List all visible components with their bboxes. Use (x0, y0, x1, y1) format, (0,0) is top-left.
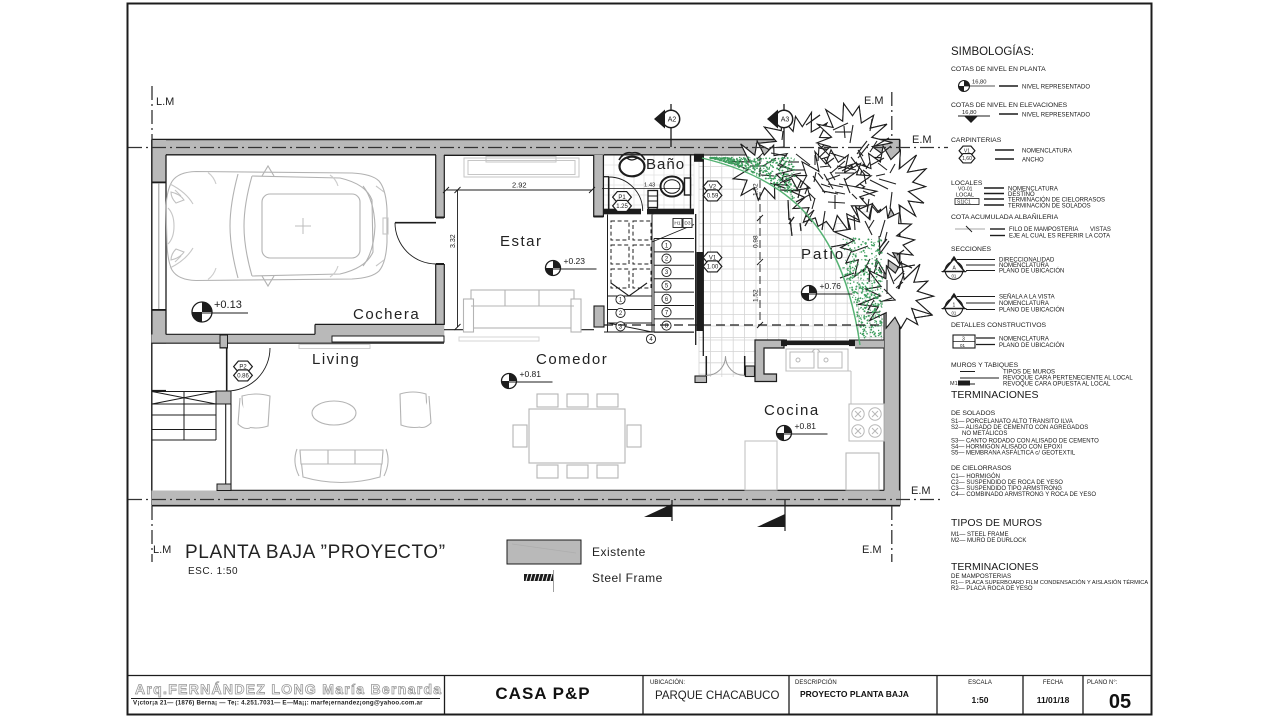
svg-text:DETALLES CONSTRUCTIVOS: DETALLES CONSTRUCTIVOS (951, 322, 1047, 329)
svg-text:V1: V1 (964, 149, 970, 155)
svg-text:Cochera: Cochera (353, 306, 420, 323)
svg-text:PLANTA BAJA ”PROYECTO”: PLANTA BAJA ”PROYECTO” (185, 542, 446, 563)
svg-text:1.52: 1.52 (753, 289, 760, 302)
svg-text:01: 01 (960, 343, 966, 348)
svg-text:E.M: E.M (862, 544, 882, 556)
svg-text:A2: A2 (668, 117, 677, 124)
svg-text:CARPINTERIAS: CARPINTERIAS (951, 137, 1002, 144)
svg-text:C4— COMBINADO ARMSTRONG Y ROC: C4— COMBINADO ARMSTRONG Y ROCA DE YESO (951, 492, 1096, 498)
svg-text:E.M: E.M (912, 134, 932, 146)
svg-text:R2— PLACA ROCA DE YESO: R2— PLACA ROCA DE YESO (951, 586, 1033, 592)
svg-text:S4— HORMIGÓN ALISADO CON EPOX: S4— HORMIGÓN ALISADO CON EPOXI (951, 444, 1062, 451)
svg-text:DE MAMPOSTERIAS: DE MAMPOSTERIAS (951, 573, 1011, 580)
svg-text:1.00: 1.00 (707, 265, 719, 271)
svg-text:NOMENCLATURA: NOMENCLATURA (999, 301, 1049, 307)
svg-text:05: 05 (1109, 691, 1131, 713)
svg-text:P2: P2 (239, 365, 246, 371)
svg-text:C1— HORMIGÓN: C1— HORMIGÓN (951, 473, 1000, 480)
svg-text:TERMINACIÓN DE CIELORRASOS: TERMINACIÓN DE CIELORRASOS (1008, 197, 1105, 204)
svg-text:Cocina: Cocina (764, 402, 820, 419)
svg-text:Arq.FERNÁNDEZ LONG María Berna: Arq.FERNÁNDEZ LONG María Bernarda (135, 681, 442, 697)
svg-text:S5— MEMBRANA ASFÁLTICA c/ GEO: S5— MEMBRANA ASFÁLTICA c/ GEOTEXTIL (951, 450, 1076, 457)
svg-text:Estar: Estar (500, 233, 543, 250)
svg-text:EJE AL CUAL ES REFERIR LA COTA: EJE AL CUAL ES REFERIR LA COTA (1009, 234, 1110, 240)
svg-text:L.M: L.M (156, 96, 174, 108)
svg-text:M2— MURO DE DURLOCK: M2— MURO DE DURLOCK (951, 538, 1026, 544)
svg-text:+0.13: +0.13 (214, 299, 242, 311)
svg-text:ESCALA: ESCALA (968, 680, 992, 686)
svg-text:+0.76: +0.76 (820, 281, 842, 291)
svg-text:PLANO DE UBICACIÓN: PLANO DE UBICACIÓN (999, 268, 1064, 275)
svg-text:FECHA: FECHA (1043, 680, 1063, 686)
svg-text:DE CIELORRASOS: DE CIELORRASOS (951, 465, 1012, 472)
svg-text:E.M: E.M (911, 485, 931, 497)
svg-text:PLANO N°:: PLANO N°: (1087, 680, 1118, 686)
svg-text:Existente: Existente (592, 545, 646, 559)
svg-text:0.98: 0.98 (753, 235, 760, 248)
svg-text:2.92: 2.92 (512, 181, 527, 190)
svg-text:COTAS DE NIVEL EN ELEVACIO: COTAS DE NIVEL EN ELEVACIONES (951, 102, 1068, 109)
svg-text:1.25: 1.25 (616, 204, 628, 210)
svg-text:VISTAS: VISTAS (1090, 227, 1111, 233)
svg-text:LOCAL: LOCAL (956, 193, 974, 199)
svg-text:E.M: E.M (864, 95, 884, 107)
svg-text:Living: Living (312, 351, 360, 368)
svg-text:FILO DE MAMPOSTERIA: FILO DE MAMPOSTERIA (1009, 227, 1078, 233)
svg-text:V1: V1 (709, 256, 717, 262)
svg-text:1,60: 1,60 (962, 156, 972, 162)
svg-text:Comedor: Comedor (536, 351, 608, 368)
svg-text:1: 1 (953, 303, 956, 309)
svg-text:TERMINACIONES: TERMINACIONES (951, 389, 1039, 401)
svg-text:MUROS Y TABIQUES: MUROS Y TABIQUES (951, 362, 1019, 369)
svg-text:L.M: L.M (153, 544, 171, 556)
svg-text:ESC. 1:50: ESC. 1:50 (188, 566, 238, 577)
svg-text:COTA ACUMULADA ALBAÑILERIA: COTA ACUMULADA ALBAÑILERIA (951, 212, 1059, 221)
svg-text:Steel Frame: Steel Frame (592, 571, 663, 585)
svg-text:Baño: Baño (646, 156, 685, 173)
svg-text:ANCHO: ANCHO (1022, 158, 1044, 164)
svg-text:TERMINACIONES: TERMINACIONES (951, 561, 1039, 573)
svg-text:V2: V2 (709, 185, 716, 191)
svg-text:PLANO DE UBICACIÓN: PLANO DE UBICACIÓN (999, 342, 1064, 349)
svg-text:UBICACIÓN:: UBICACIÓN: (650, 679, 685, 686)
svg-text:D3: D3 (684, 221, 690, 227)
svg-text:Patio: Patio (801, 246, 845, 263)
svg-text:NIVEL REPRESENTADO: NIVEL REPRESENTADO (1022, 85, 1090, 91)
svg-text:NIVEL REPRESENTADO: NIVEL REPRESENTADO (1022, 113, 1090, 119)
svg-text:NO METÁLICOS: NO METÁLICOS (962, 430, 1007, 437)
svg-text:TERMINACIÓN DE SOLADOS: TERMINACIÓN DE SOLADOS (1008, 203, 1091, 210)
svg-text:0.59: 0.59 (707, 194, 719, 200)
svg-text:R1— PLACA SUPERBOARD FILM CON: R1— PLACA SUPERBOARD FILM CONDENSACIÓN Y… (951, 579, 1148, 586)
svg-text:+0.81: +0.81 (520, 369, 542, 379)
svg-text:SECCIONES: SECCIONES (951, 246, 992, 253)
svg-text:11/01/18: 11/01/18 (1037, 695, 1070, 705)
svg-text:DE SOLADOS: DE SOLADOS (951, 410, 996, 417)
svg-text:01: 01 (952, 311, 957, 316)
svg-text:16,80: 16,80 (962, 110, 977, 116)
svg-text:16,80: 16,80 (972, 80, 987, 86)
svg-text:M1: M1 (950, 381, 958, 387)
svg-text:V¡ctor¡a 21— (1876) Berna¡ — T: V¡ctor¡a 21— (1876) Berna¡ — Te¡: 4.251.… (133, 700, 423, 707)
svg-text:P1: P1 (618, 195, 626, 201)
svg-text:0.86: 0.86 (237, 374, 249, 380)
svg-text:REVOQUE CARA OPUESTA AL LOCAL: REVOQUE CARA OPUESTA AL LOCAL (1003, 382, 1111, 388)
svg-text:1.52: 1.52 (753, 183, 760, 196)
svg-text:DESCRIPCIÓN: DESCRIPCIÓN (795, 679, 837, 686)
svg-text:1:50: 1:50 (971, 695, 988, 705)
svg-text:3.32: 3.32 (450, 234, 457, 248)
svg-text:3: 3 (962, 337, 965, 343)
svg-text:A3: A3 (781, 117, 790, 124)
svg-text:COTAS DE NIVEL EN PLANTA: COTAS DE NIVEL EN PLANTA (951, 66, 1046, 73)
svg-text:NOMENCLATURA: NOMENCLATURA (1022, 149, 1072, 155)
svg-text:SIMBOLOGÍAS:: SIMBOLOGÍAS: (951, 45, 1034, 58)
svg-text:NOMENCLATURA: NOMENCLATURA (999, 337, 1049, 343)
svg-text:+0.81: +0.81 (795, 421, 817, 431)
svg-text:TIPOS DE MUROS: TIPOS DE MUROS (951, 517, 1042, 529)
svg-text:01: 01 (952, 274, 957, 279)
svg-text:S1|C1: S1|C1 (957, 200, 971, 206)
svg-text:CASA P&P: CASA P&P (495, 684, 590, 703)
svg-text:PARQUE CHACABUCO: PARQUE CHACABUCO (655, 690, 779, 702)
svg-text:+0.23: +0.23 (564, 256, 586, 266)
svg-text:H1: H1 (674, 221, 680, 227)
svg-text:PLANO DE UBICACIÓN: PLANO DE UBICACIÓN (999, 307, 1064, 314)
svg-text:SEÑALA A LA VISTA: SEÑALA A LA VISTA (999, 294, 1055, 301)
svg-text:PROYECTO PLANTA BAJA: PROYECTO PLANTA BAJA (800, 689, 909, 699)
svg-text:1.43: 1.43 (644, 183, 655, 189)
